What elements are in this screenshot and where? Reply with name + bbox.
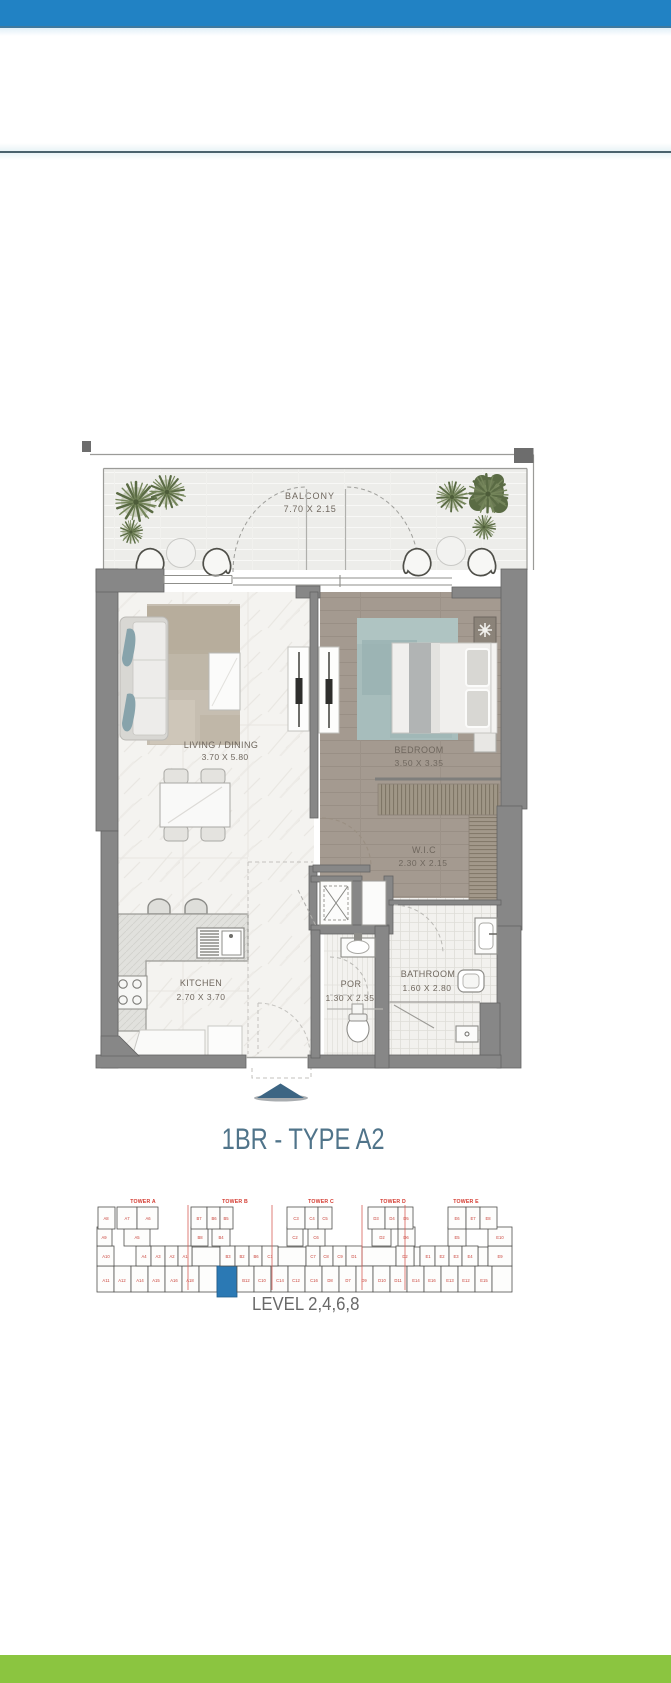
svg-text:BEDROOM: BEDROOM (394, 745, 443, 755)
svg-text:B2: B2 (239, 1254, 245, 1259)
svg-text:7.70 X 2.15: 7.70 X 2.15 (284, 504, 337, 514)
svg-text:D10: D10 (378, 1278, 386, 1283)
svg-text:A6: A6 (145, 1216, 151, 1221)
svg-text:B12: B12 (242, 1278, 250, 1283)
svg-text:TOWER C: TOWER C (308, 1199, 334, 1205)
svg-text:E2: E2 (439, 1254, 445, 1259)
svg-text:D2: D2 (379, 1235, 385, 1240)
svg-text:3.70 X 5.80: 3.70 X 5.80 (202, 752, 249, 762)
svg-text:C14: C14 (276, 1278, 284, 1283)
svg-text:A15: A15 (152, 1278, 160, 1283)
svg-text:D6: D6 (403, 1235, 409, 1240)
svg-text:D3: D3 (373, 1216, 379, 1221)
svg-text:2.30 X 2.15: 2.30 X 2.15 (399, 858, 448, 868)
svg-text:KITCHEN: KITCHEN (180, 978, 222, 988)
svg-text:C12: C12 (292, 1278, 300, 1283)
svg-text:B4: B4 (218, 1235, 224, 1240)
svg-text:C6: C6 (313, 1235, 319, 1240)
svg-text:A11: A11 (102, 1278, 110, 1283)
svg-text:D8: D8 (327, 1278, 333, 1283)
svg-text:W.I.C: W.I.C (412, 845, 436, 855)
svg-text:C5: C5 (322, 1216, 328, 1221)
svg-text:E16: E16 (428, 1278, 436, 1283)
svg-text:E10: E10 (496, 1235, 504, 1240)
svg-text:A18: A18 (186, 1278, 194, 1283)
svg-text:3.50 X 3.35: 3.50 X 3.35 (395, 758, 444, 768)
svg-text:D5: D5 (403, 1216, 409, 1221)
svg-text:C10: C10 (258, 1278, 266, 1283)
svg-text:C4: C4 (309, 1216, 315, 1221)
svg-text:A14: A14 (136, 1278, 144, 1283)
svg-text:E4: E4 (467, 1254, 473, 1259)
svg-text:A12: A12 (118, 1278, 126, 1283)
svg-text:E1: E1 (425, 1254, 431, 1259)
svg-text:POR: POR (341, 979, 362, 989)
svg-text:D7: D7 (345, 1278, 351, 1283)
svg-text:A9: A9 (101, 1235, 107, 1240)
svg-text:C2: C2 (292, 1235, 298, 1240)
svg-text:A1: A1 (182, 1254, 188, 1259)
svg-text:B6: B6 (253, 1254, 259, 1259)
svg-text:E6: E6 (454, 1216, 460, 1221)
svg-text:A2: A2 (169, 1254, 175, 1259)
svg-text:E9: E9 (497, 1254, 503, 1259)
svg-text:E8: E8 (485, 1216, 491, 1221)
svg-text:E12: E12 (462, 1278, 470, 1283)
svg-text:E13: E13 (446, 1278, 454, 1283)
svg-text:A16: A16 (170, 1278, 178, 1283)
svg-text:TOWER E: TOWER E (453, 1199, 479, 1205)
svg-text:C9: C9 (337, 1254, 343, 1259)
svg-text:BATHROOM: BATHROOM (401, 969, 456, 979)
svg-text:1.60 X 2.80: 1.60 X 2.80 (403, 983, 452, 993)
svg-text:A7: A7 (124, 1216, 130, 1221)
svg-text:C7: C7 (310, 1254, 316, 1259)
svg-text:C16: C16 (310, 1278, 318, 1283)
svg-text:E14: E14 (412, 1278, 420, 1283)
svg-text:A10: A10 (102, 1254, 110, 1259)
svg-text:B3: B3 (225, 1254, 231, 1259)
svg-text:TOWER D: TOWER D (380, 1199, 406, 1205)
svg-text:D1: D1 (351, 1254, 357, 1259)
svg-text:E7: E7 (470, 1216, 476, 1221)
svg-text:B7: B7 (196, 1216, 202, 1221)
svg-text:C1: C1 (267, 1254, 273, 1259)
svg-text:D4: D4 (389, 1216, 395, 1221)
svg-text:E15: E15 (480, 1278, 488, 1283)
svg-text:TOWER B: TOWER B (222, 1199, 248, 1205)
svg-text:TOWER A: TOWER A (130, 1199, 156, 1205)
svg-text:A4: A4 (141, 1254, 147, 1259)
svg-text:A5: A5 (134, 1235, 140, 1240)
svg-text:B5: B5 (223, 1216, 229, 1221)
svg-text:BALCONY: BALCONY (285, 491, 335, 501)
svg-text:C3: C3 (293, 1216, 299, 1221)
svg-text:E3: E3 (453, 1254, 459, 1259)
svg-text:D11: D11 (394, 1278, 402, 1283)
svg-text:B8: B8 (197, 1235, 203, 1240)
svg-text:2.70 X 3.70: 2.70 X 3.70 (177, 992, 226, 1002)
svg-text:LIVING / DINING: LIVING / DINING (184, 740, 259, 750)
svg-text:C8: C8 (323, 1254, 329, 1259)
svg-text:A8: A8 (103, 1216, 109, 1221)
svg-text:E5: E5 (454, 1235, 460, 1240)
svg-text:B6: B6 (211, 1216, 217, 1221)
svg-text:A3: A3 (155, 1254, 161, 1259)
